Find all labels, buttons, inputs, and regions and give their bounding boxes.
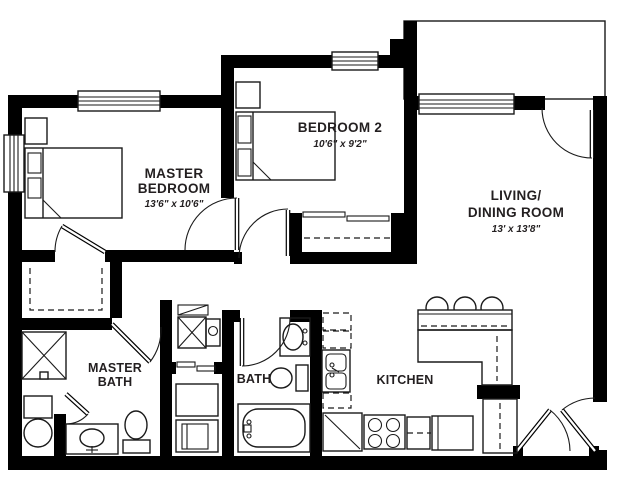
window [78,91,160,111]
bath-label: BATH [237,372,272,386]
master-bedroom-label-1: MASTER [145,166,204,181]
floor-plan: MASTER BEDROOM 13'6" x 10'6" BEDROOM 2 1… [0,0,632,480]
bedroom2-dims: 10'6" x 9'2" [313,139,366,150]
living-dims: 13' x 13'8" [492,224,541,235]
master-bath-label-1: MASTER [88,361,142,375]
master-bath-label-2: BATH [98,375,133,389]
kitchen-label: KITCHEN [377,373,434,387]
master-bedroom-label-2: BEDROOM [138,181,211,196]
window [419,94,514,114]
living-label-1: LIVING/ [491,188,542,203]
window [4,135,24,192]
master-bedroom-dims: 13'6" x 10'6" [145,199,204,210]
window [332,52,378,70]
living-label-2: DINING ROOM [468,205,564,220]
bedroom2-label: BEDROOM 2 [298,120,382,135]
